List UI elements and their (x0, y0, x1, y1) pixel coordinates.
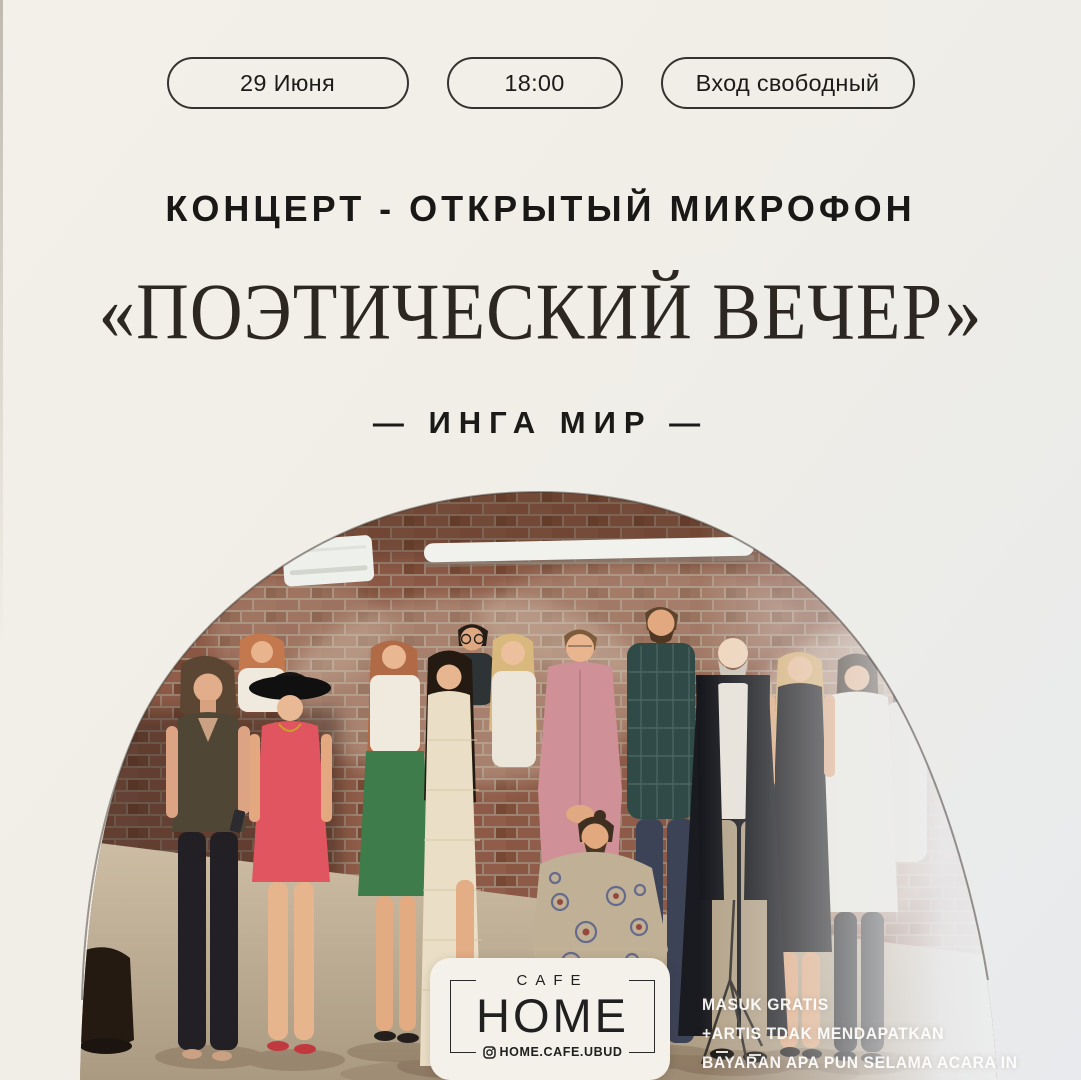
artist-name: — ИНГА МИР — (0, 405, 1081, 441)
event-kicker: КОНЦЕРТ - ОТКРЫТЫЙ МИКРОФОН (0, 188, 1081, 230)
cafe-logo-name: HOME (476, 989, 629, 1043)
person-blonde-woman (489, 633, 537, 767)
cafe-logo-frame: CAFE HOME HOME.CAFE.UBUD (450, 972, 650, 1061)
time-badge-label: 18:00 (504, 70, 564, 97)
note-line: BAYARAN APA PUN SELAMA ACARA IN (702, 1049, 1018, 1078)
date-badge-label: 29 Июня (240, 70, 335, 97)
cafe-logo-top: CAFE (476, 972, 629, 989)
cafe-logo-handle: HOME.CAFE.UBUD (500, 1045, 623, 1059)
event-poster: 29 Июня 18:00 Вход свободный КОНЦЕРТ - О… (0, 0, 1081, 1080)
cafe-logo-card: CAFE HOME HOME.CAFE.UBUD (430, 958, 670, 1080)
note-line: +ARTIS TDAK MENDAPATKAN (702, 1020, 1018, 1049)
event-note: MASUK GRATIS +ARTIS TDAK MENDAPATKAN BAY… (702, 991, 1018, 1078)
ac-unit (282, 535, 375, 587)
speaker (80, 947, 134, 1054)
time-badge: 18:00 (447, 57, 623, 109)
event-title: «ПОЭТИЧЕСКИЙ ВЕЧЕР» (0, 266, 1081, 358)
entry-badge-label: Вход свободный (696, 70, 880, 97)
photo-fade (700, 480, 1081, 1080)
instagram-icon (483, 1046, 496, 1059)
person-back-left (238, 633, 286, 712)
date-badge: 29 Июня (167, 57, 409, 109)
cafe-logo-handle-row: HOME.CAFE.UBUD (476, 1043, 629, 1061)
note-line: MASUK GRATIS (702, 991, 1018, 1020)
badge-row: 29 Июня 18:00 Вход свободный (0, 57, 1081, 109)
entry-badge: Вход свободный (661, 57, 915, 109)
